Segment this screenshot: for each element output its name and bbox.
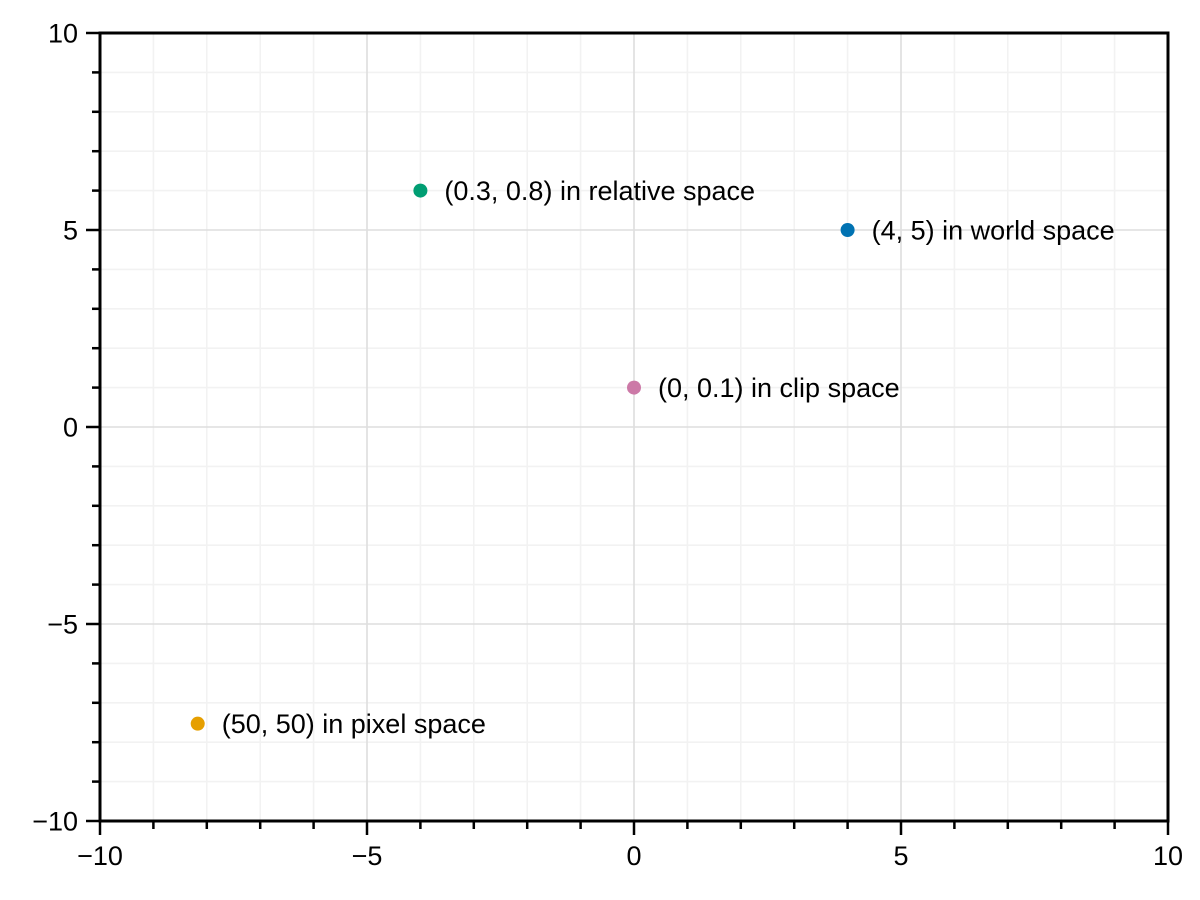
point-label: (0, 0.1) in clip space — [658, 373, 900, 403]
x-tick-label: −5 — [352, 841, 383, 871]
y-tick-label: 5 — [63, 216, 78, 246]
y-tick-label: 0 — [63, 413, 78, 443]
point-label: (4, 5) in world space — [872, 216, 1115, 246]
x-tick-label: 10 — [1153, 841, 1183, 871]
y-tick-label: 10 — [48, 19, 78, 49]
x-tick-label: 5 — [893, 841, 908, 871]
point-label: (0.3, 0.8) in relative space — [444, 176, 755, 206]
scatter-plot-canvas: −10−50510−10−50510(0.3, 0.8) in relative… — [0, 0, 1200, 900]
data-point — [413, 184, 427, 198]
y-tick-label: −5 — [47, 610, 78, 640]
data-point — [841, 223, 855, 237]
figure-background — [0, 0, 1200, 900]
data-point — [627, 381, 641, 395]
scatter-figure: −10−50510−10−50510(0.3, 0.8) in relative… — [0, 0, 1200, 900]
y-tick-label: −10 — [32, 807, 78, 837]
x-tick-label: −10 — [77, 841, 123, 871]
point-label: (50, 50) in pixel space — [222, 709, 486, 739]
data-point — [191, 717, 205, 731]
x-tick-label: 0 — [626, 841, 641, 871]
